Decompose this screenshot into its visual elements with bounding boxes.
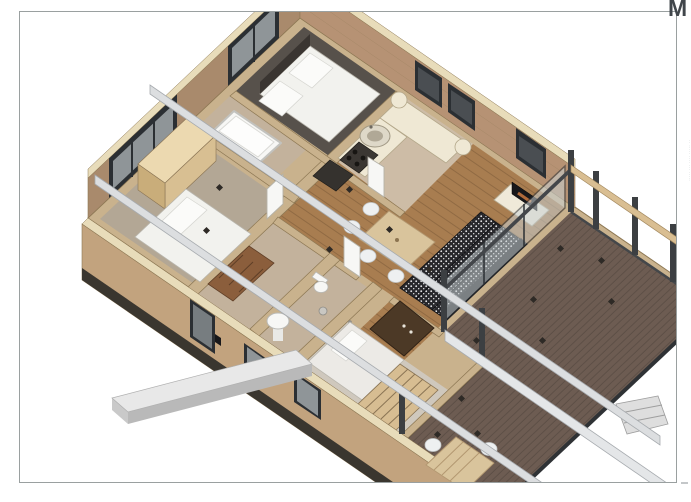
- sheet-corner-mark: M: [668, 0, 687, 21]
- outdoor-chair: [425, 439, 441, 452]
- margin-stamp-text: ·· ····· ···· ··· ·····: [687, 140, 691, 181]
- dining-chair: [363, 203, 379, 216]
- dining-chair: [360, 250, 376, 263]
- dining-chair: [388, 270, 404, 283]
- drawing-sheet: M ·· ····· ···· ··· ·····: [0, 0, 691, 502]
- scene: [82, 0, 691, 502]
- corner-shelf: [455, 139, 471, 155]
- corner-shelf: [391, 92, 407, 108]
- faucet: [369, 125, 372, 128]
- shower-fitting: [319, 307, 327, 315]
- toilet: [314, 282, 328, 293]
- house-plan-rendering: M ·· ····· ···· ··· ·····: [0, 0, 691, 502]
